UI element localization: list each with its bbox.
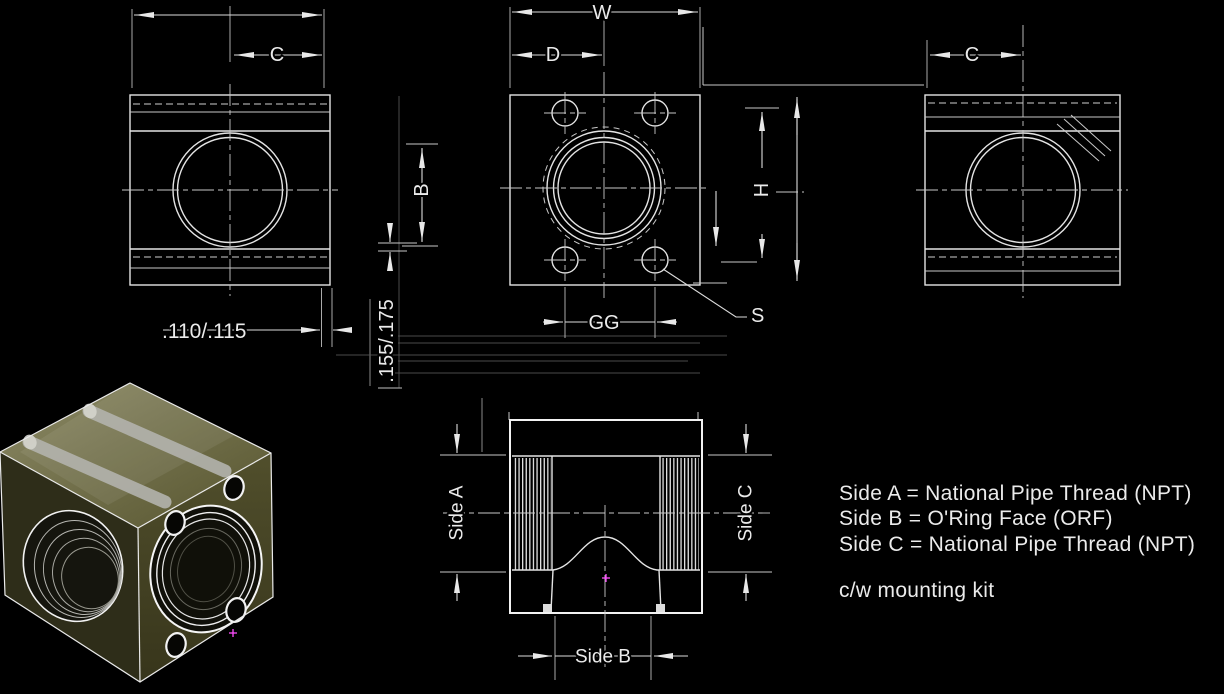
dim-label-110-115: .110/.115 (162, 320, 246, 343)
section-view: Side A Side C Side B (440, 412, 772, 680)
note-mounting-kit: c/w mounting kit (839, 579, 994, 602)
mount-slot-left (543, 604, 552, 612)
dim-label-w: W (593, 2, 612, 24)
mount-slot-right (656, 604, 665, 612)
dims-middle-right: H (693, 27, 924, 283)
drawing-canvas: C .110/.115 .155/.175 B (0, 0, 1224, 694)
dim-label-155-175: .155/.175 (376, 299, 398, 382)
center-mark-iso (229, 629, 237, 637)
dim-label-c-right: C (965, 44, 979, 66)
isometric-view (0, 383, 277, 682)
dim-label-h: H (751, 183, 773, 197)
side-b-label: Side B (575, 647, 631, 668)
view-front-flange: W D GG S (500, 2, 764, 338)
dims-left-middle: .155/.175 B (336, 96, 727, 452)
engineering-drawing: C .110/.115 .155/.175 B (0, 0, 1224, 694)
dim-label-s: S (751, 305, 764, 327)
dim-label-c-left: C (270, 44, 284, 66)
note-side-b: Side B = O'Ring Face (ORF) (839, 507, 1113, 530)
notes-block: Side A = National Pipe Thread (NPT) Side… (839, 482, 1195, 602)
dim-label-d: D (546, 44, 560, 66)
view-top-right: C (916, 25, 1128, 298)
dim-label-gg: GG (588, 312, 619, 334)
center-mark (602, 574, 610, 582)
thread-hatch-left (513, 458, 551, 570)
side-c-label: Side C (736, 484, 757, 541)
dim-label-b: B (411, 183, 433, 196)
side-a-label: Side A (447, 485, 468, 540)
bolt-holes (544, 92, 676, 281)
note-side-a: Side A = National Pipe Thread (NPT) (839, 482, 1192, 505)
view-top-left: C .110/.115 (122, 6, 352, 347)
thread-hatch-right (661, 458, 699, 570)
note-side-c: Side C = National Pipe Thread (NPT) (839, 533, 1195, 556)
